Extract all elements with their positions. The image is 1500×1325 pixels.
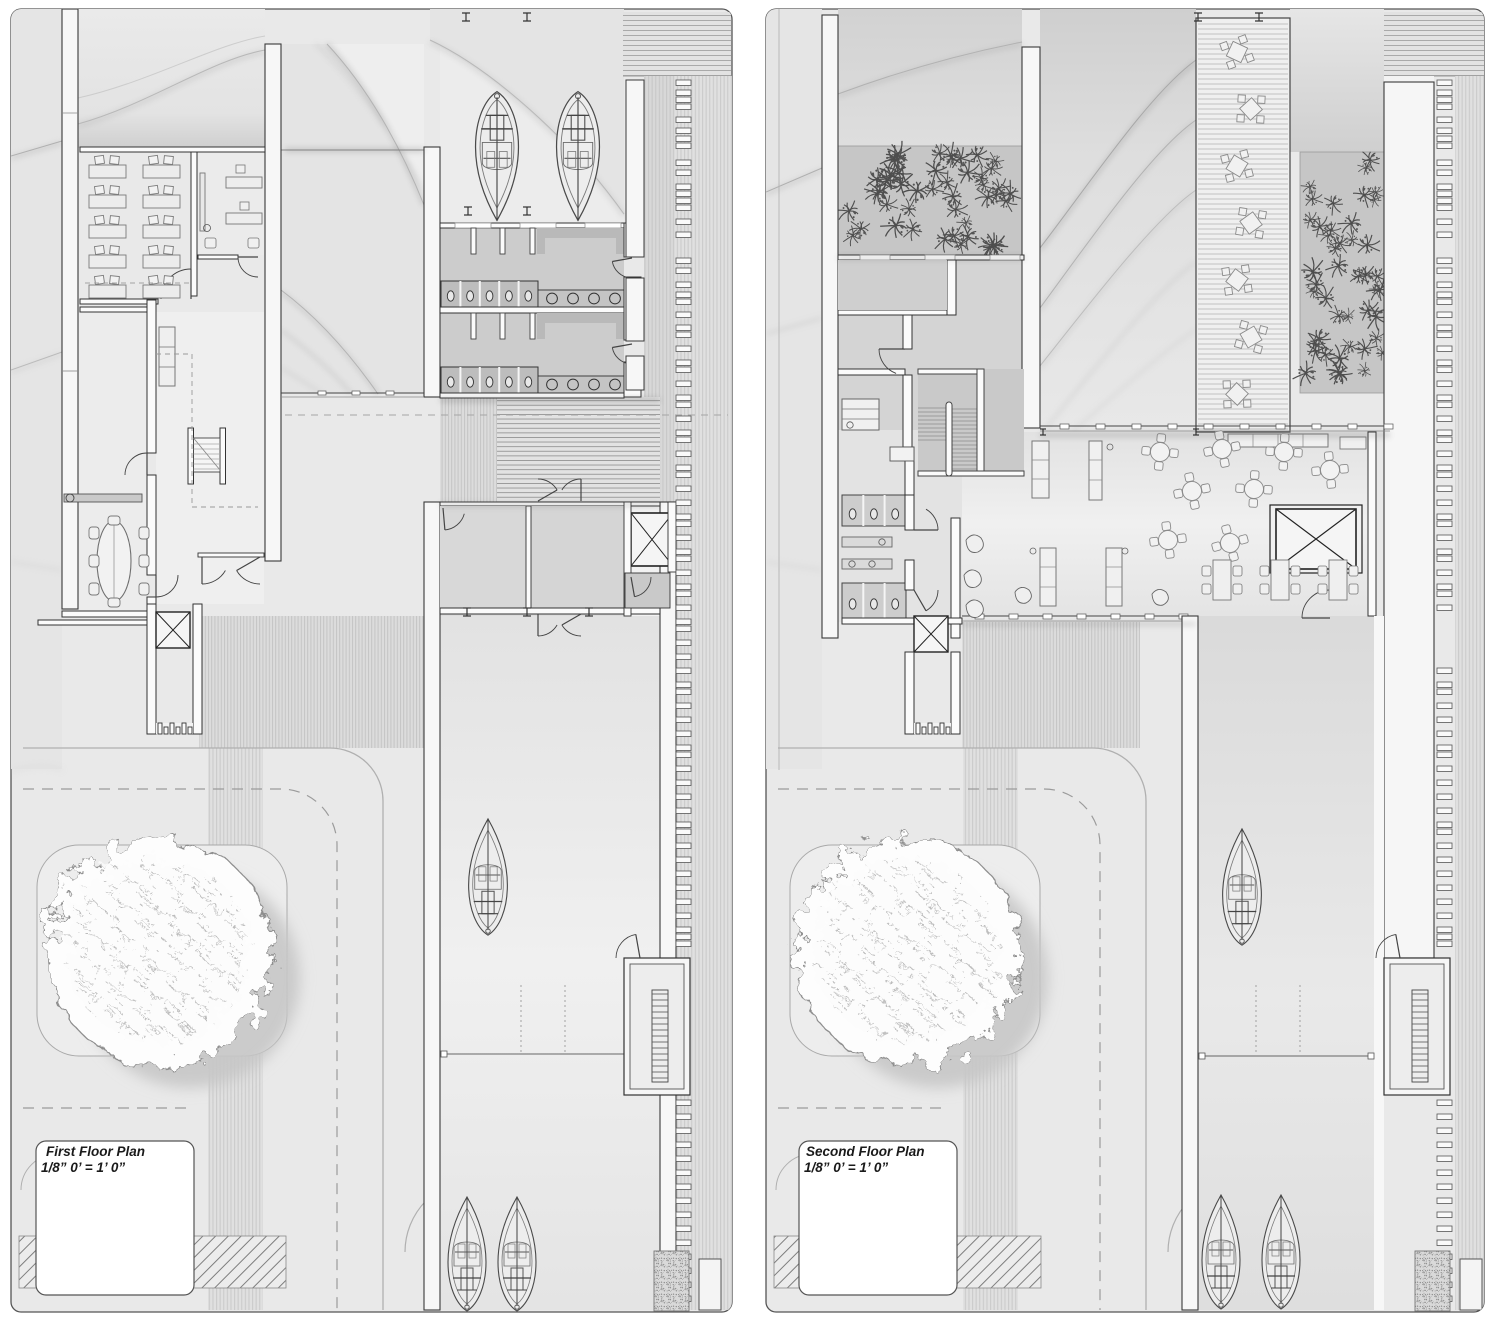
svg-text:First Floor Plan: First Floor Plan — [46, 1144, 145, 1159]
svg-text:1/8” 0’ = 1’ 0”: 1/8” 0’ = 1’ 0” — [41, 1160, 125, 1175]
svg-text:1/8” 0’ = 1’ 0”: 1/8” 0’ = 1’ 0” — [804, 1160, 888, 1175]
svg-text:Second Floor Plan: Second Floor Plan — [806, 1144, 925, 1159]
